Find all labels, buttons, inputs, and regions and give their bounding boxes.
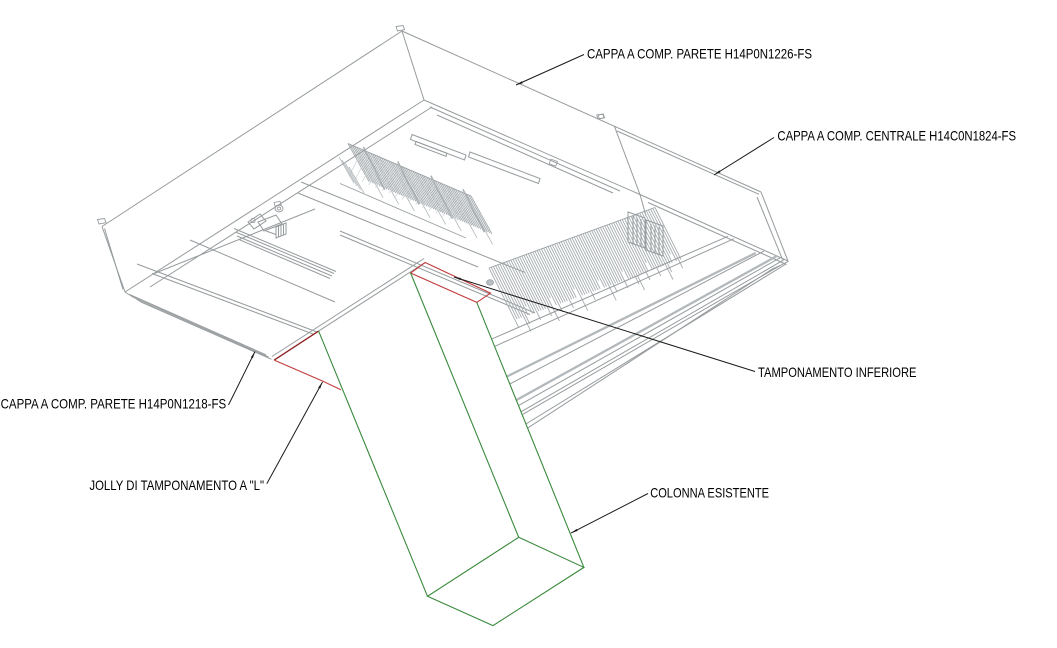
svg-text:COLONNA ESISTENTE: COLONNA ESISTENTE <box>650 485 769 501</box>
svg-text:CAPPA A COMP. PARETE H14P0N121: CAPPA A COMP. PARETE H14P0N1218-FS <box>1 396 227 412</box>
svg-text:JOLLY DI TAMPONAMENTO A "L": JOLLY DI TAMPONAMENTO A "L" <box>89 477 264 493</box>
svg-text:CAPPA A COMP. PARETE H14P0N122: CAPPA A COMP. PARETE H14P0N1226-FS <box>587 46 812 62</box>
svg-text:TAMPONAMENTO INFERIORE: TAMPONAMENTO INFERIORE <box>758 364 917 380</box>
svg-text:CAPPA A COMP. CENTRALE H14C0N1: CAPPA A COMP. CENTRALE H14C0N1824-FS <box>777 127 1016 143</box>
